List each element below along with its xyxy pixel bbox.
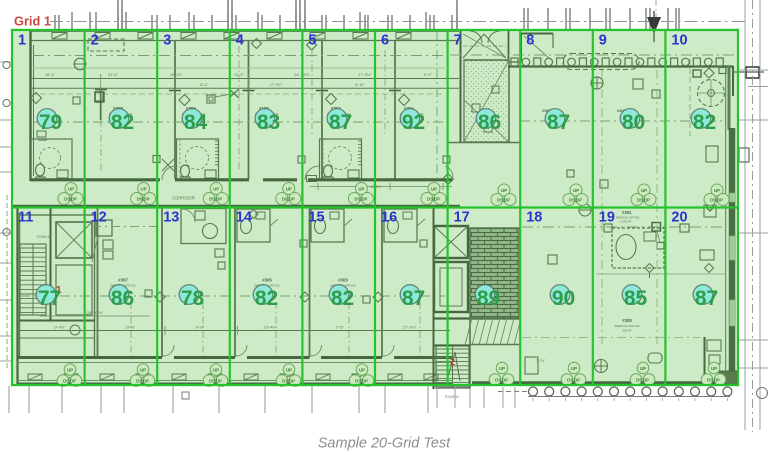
svg-text:3: 3 — [163, 33, 171, 49]
svg-text:DS,DP: DS,DP — [710, 198, 723, 203]
svg-text:5: 5 — [308, 33, 316, 49]
svg-text:UP: UP — [286, 368, 292, 373]
svg-text:13: 13 — [163, 210, 179, 226]
svg-text:9: 9 — [599, 33, 607, 49]
svg-text:15: 15 — [308, 210, 324, 226]
svg-text:86: 86 — [478, 111, 501, 134]
svg-text:19: 19 — [599, 210, 615, 226]
svg-text:#310: #310 — [38, 137, 48, 142]
svg-text:UP: UP — [573, 188, 579, 193]
svg-text:UP: UP — [358, 187, 364, 192]
svg-text:17: 17 — [454, 210, 470, 226]
svg-text:1: 1 — [18, 33, 26, 49]
svg-text:89: 89 — [477, 287, 500, 310]
svg-text:UP: UP — [213, 187, 219, 192]
svg-text:STAIR #1: STAIR #1 — [445, 395, 460, 399]
svg-text:UP: UP — [501, 188, 507, 193]
svg-text:87: 87 — [402, 287, 425, 310]
svg-text:DS,DP: DS,DP — [354, 197, 367, 202]
svg-text:86: 86 — [111, 287, 134, 310]
svg-text:85: 85 — [624, 287, 648, 310]
svg-text:DS,DP: DS,DP — [636, 378, 649, 383]
svg-text:UP: UP — [711, 366, 717, 371]
svg-text:#300: #300 — [622, 318, 632, 323]
svg-text:DS,DP: DS,DP — [569, 198, 582, 203]
svg-text:UP: UP — [213, 368, 219, 373]
svg-text:UP: UP — [140, 368, 146, 373]
svg-text:#305: #305 — [262, 278, 272, 283]
svg-text:#307: #307 — [118, 278, 128, 283]
svg-text:UP: UP — [68, 187, 74, 192]
svg-text:DS,DP: DS,DP — [427, 197, 440, 202]
svg-text:84: 84 — [184, 111, 208, 134]
svg-text:82: 82 — [693, 111, 716, 134]
svg-text:UP: UP — [67, 368, 73, 373]
svg-text:87: 87 — [547, 111, 570, 134]
svg-text:8: 8 — [526, 33, 534, 49]
svg-text:90: 90 — [552, 287, 575, 310]
svg-text:92: 92 — [402, 111, 425, 134]
svg-text:DS,DP: DS,DP — [282, 197, 295, 202]
svg-text:UP: UP — [499, 366, 505, 371]
svg-text:14: 14 — [236, 210, 252, 226]
svg-text:#301: #301 — [622, 210, 632, 215]
svg-text:UP: UP — [714, 188, 720, 193]
svg-text:80: 80 — [622, 111, 645, 134]
svg-text:87: 87 — [695, 287, 718, 310]
svg-text:7: 7 — [454, 33, 462, 49]
svg-text:UP: UP — [641, 188, 647, 193]
svg-text:DS,DP: DS,DP — [209, 379, 222, 384]
svg-text:UP: UP — [286, 187, 292, 192]
svg-text:DS,DP: DS,DP — [63, 379, 76, 384]
svg-text:UP: UP — [141, 187, 147, 192]
svg-text:18: 18 — [526, 210, 542, 226]
svg-text:2: 2 — [91, 33, 99, 49]
svg-text:983 SF: 983 SF — [622, 329, 631, 333]
svg-text:6: 6 — [381, 33, 389, 49]
svg-text:2: 2 — [450, 357, 455, 367]
svg-text:10: 10 — [671, 33, 687, 49]
svg-text:UP: UP — [431, 187, 437, 192]
svg-text:82: 82 — [111, 111, 134, 134]
svg-text:82: 82 — [255, 287, 278, 310]
svg-text:UP: UP — [571, 366, 577, 371]
svg-text:DS,DP: DS,DP — [707, 378, 720, 383]
svg-text:DS,DP: DS,DP — [495, 378, 508, 383]
svg-text:DS,DP: DS,DP — [567, 378, 580, 383]
svg-text:20: 20 — [671, 210, 687, 226]
svg-text:(MEDICAL OFFICE): (MEDICAL OFFICE) — [614, 324, 639, 328]
svg-text:DS,DP: DS,DP — [137, 197, 150, 202]
svg-text:4: 4 — [236, 33, 244, 49]
svg-text:79: 79 — [39, 111, 62, 134]
svg-text:DS,DP: DS,DP — [497, 198, 510, 203]
svg-text:UP: UP — [359, 368, 365, 373]
svg-text:83: 83 — [257, 111, 280, 134]
svg-text:11: 11 — [18, 210, 33, 226]
svg-text:12: 12 — [91, 210, 107, 226]
svg-text:77: 77 — [38, 287, 61, 310]
svg-text:DS,DP: DS,DP — [637, 198, 650, 203]
svg-text:UP: UP — [640, 366, 646, 371]
svg-text:DS,DP: DS,DP — [136, 379, 149, 384]
svg-text:#303: #303 — [338, 278, 348, 283]
svg-text:Sample 20-Grid Test: Sample 20-Grid Test — [318, 436, 451, 452]
svg-text:82: 82 — [331, 287, 354, 310]
svg-text:DS,DP: DS,DP — [209, 197, 222, 202]
svg-text:DS,DP: DS,DP — [282, 379, 295, 384]
svg-text:87: 87 — [329, 111, 352, 134]
svg-text:78: 78 — [181, 287, 205, 310]
svg-text:DS,DP: DS,DP — [64, 197, 77, 202]
svg-text:Grid 1: Grid 1 — [14, 14, 51, 29]
svg-text:16: 16 — [381, 210, 397, 226]
svg-text:DS,DP: DS,DP — [355, 379, 368, 384]
svg-text:1,939 SF: 1,939 SF — [620, 220, 632, 224]
